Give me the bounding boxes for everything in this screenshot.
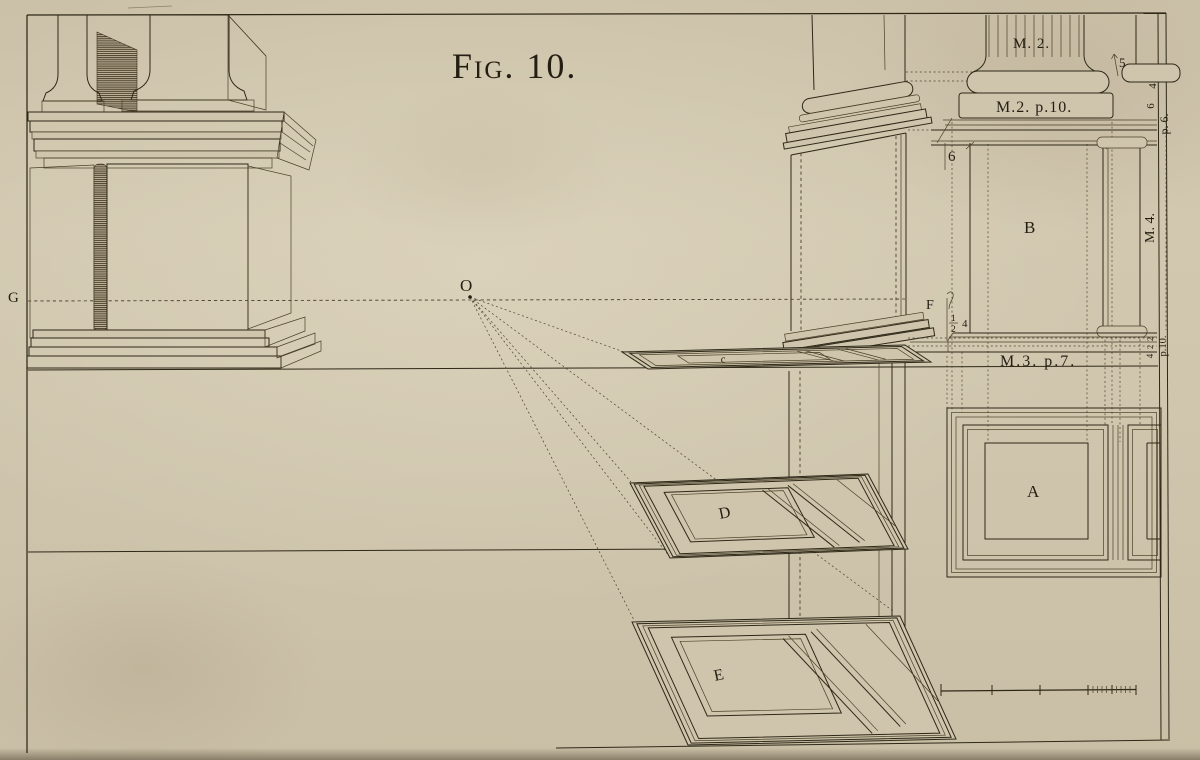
label-stack-middle: 2 [1145, 345, 1155, 349]
label-g: G [8, 290, 19, 306]
label-stack-bottom: 4 [1145, 353, 1155, 358]
dado-b-elevation [945, 137, 1147, 337]
label-four-after-frac: 4 [962, 318, 968, 330]
panel-c [622, 345, 931, 369]
label-m2-column: M. 2. [1013, 36, 1050, 52]
label-b: B [1024, 218, 1035, 237]
label-f: F [926, 298, 934, 313]
column-shaft-left [43, 15, 102, 101]
engraved-plate: Fig. 10. G O c D E F B A 6 5 M. 2. M.2. … [0, 0, 1200, 760]
label-four-margin: 4 [1147, 83, 1159, 89]
scale-bar [941, 684, 1136, 696]
fluted-column-elevation [931, 15, 1157, 145]
ground-line-lower [28, 549, 698, 552]
panel-e [632, 616, 956, 745]
projection-dashed-lines [906, 72, 1166, 442]
plan-view-a [947, 408, 1161, 577]
panel-d [630, 474, 908, 558]
pedestal-base [27, 317, 321, 368]
label-frac-numerator: 1 [951, 314, 956, 324]
label-m2-p10: M.2. p.10. [996, 99, 1072, 116]
label-p10-margin: p.10. [1158, 336, 1169, 357]
pedestal-perspective-view [27, 15, 321, 368]
column-fragment-top-right [1112, 15, 1181, 82]
label-stack-top: 2 [1145, 337, 1155, 341]
label-m3-p7: M.3. p.7. [1000, 353, 1076, 370]
horizon-line [28, 299, 905, 301]
label-five: 5 [1119, 55, 1126, 70]
label-six-under-cornice: 6 [948, 149, 956, 165]
vanishing-point-o [468, 295, 472, 299]
label-six-margin: 6 [1145, 103, 1157, 109]
pedestal-dado [30, 164, 291, 338]
plate-drawing: Fig. 10. G O c D E F B A 6 5 M. 2. M.2. … [0, 0, 1200, 760]
label-a: A [1027, 482, 1040, 501]
label-m4-margin: M. 4. [1143, 213, 1158, 243]
figure-title: Fig. 10. [452, 46, 577, 86]
label-o: O [460, 276, 472, 295]
label-p6-margin: p. 6. [1157, 114, 1171, 135]
label-frac-denominator: 2 [951, 325, 956, 335]
pedestal-cap-cornice [28, 112, 316, 170]
column-shaft-right [131, 15, 247, 100]
